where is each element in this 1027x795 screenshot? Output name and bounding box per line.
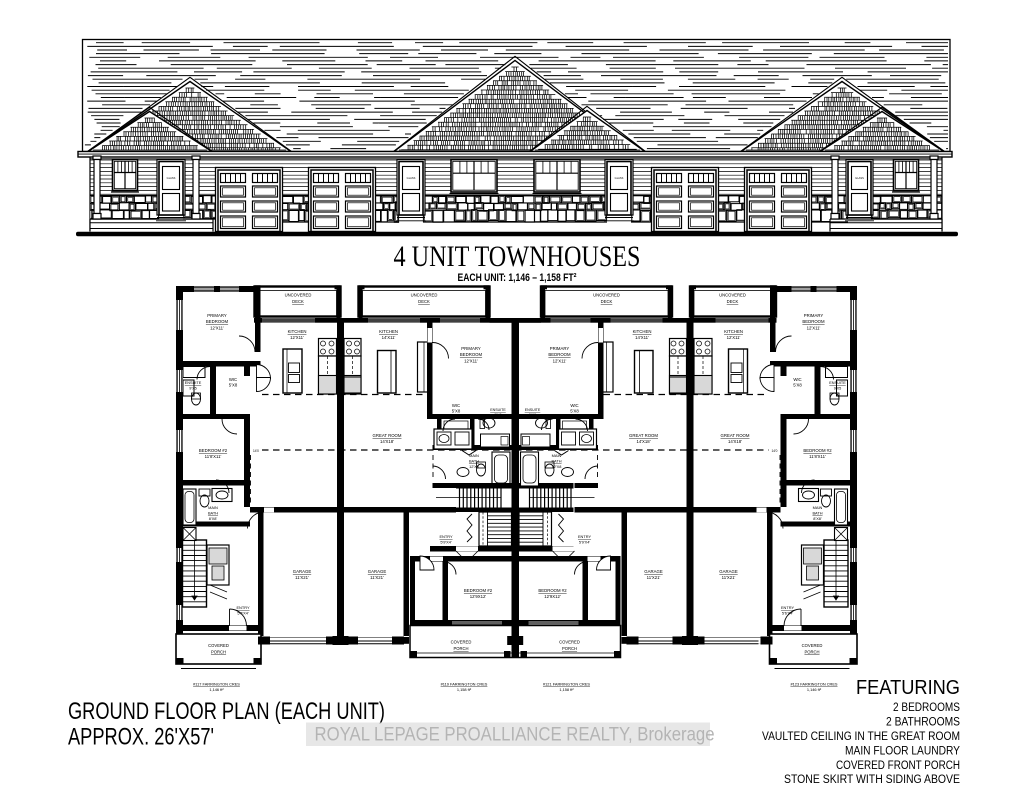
svg-text:WIC: WIC bbox=[793, 377, 801, 382]
svg-text:GLASS: GLASS bbox=[615, 176, 624, 180]
svg-text:9'X5: 9'X5 bbox=[834, 387, 841, 391]
svg-text:11'X21': 11'X21' bbox=[722, 575, 736, 580]
svg-text:#117 FARRINGTON CRES: #117 FARRINGTON CRES bbox=[193, 682, 240, 687]
svg-text:COVERED: COVERED bbox=[559, 640, 580, 645]
svg-text:ENTRY: ENTRY bbox=[439, 534, 453, 539]
svg-text:5'6'X4': 5'6'X4' bbox=[237, 611, 249, 616]
svg-text:VAULTED CEILING IN THE GREAT R: VAULTED CEILING IN THE GREAT ROOM bbox=[762, 729, 960, 743]
svg-text:ENSUITE: ENSUITE bbox=[490, 408, 506, 412]
svg-text:BEDROOM: BEDROOM bbox=[460, 352, 483, 357]
svg-text:5'X8: 5'X8 bbox=[229, 383, 238, 388]
svg-text:BEDROOM #2: BEDROOM #2 bbox=[464, 588, 493, 593]
svg-text:DECK: DECK bbox=[418, 299, 430, 304]
svg-text:1,158 ft²: 1,158 ft² bbox=[559, 687, 574, 692]
svg-text:PRIMARY: PRIMARY bbox=[461, 346, 481, 351]
svg-text:MAIN: MAIN bbox=[813, 505, 823, 510]
svg-text:BEDROOM #2: BEDROOM #2 bbox=[538, 588, 567, 593]
svg-text:WIC: WIC bbox=[452, 403, 460, 408]
svg-text:14'X18': 14'X18' bbox=[380, 439, 394, 444]
svg-text:GREAT ROOM: GREAT ROOM bbox=[629, 433, 658, 438]
svg-text:KITCHEN: KITCHEN bbox=[379, 329, 398, 334]
svg-text:BATH: BATH bbox=[551, 458, 561, 463]
svg-text:GROUND FLOOR PLAN (EACH UNIT): GROUND FLOOR PLAN (EACH UNIT) bbox=[68, 698, 385, 725]
svg-text:11'8'X11': 11'8'X11' bbox=[809, 454, 826, 459]
svg-text:11'X21': 11'X21' bbox=[370, 575, 384, 580]
svg-text:2 BATHROOMS: 2 BATHROOMS bbox=[886, 715, 960, 729]
svg-text:12'X8: 12'X8 bbox=[469, 464, 479, 469]
svg-text:COVERED: COVERED bbox=[802, 643, 823, 648]
svg-text:12'X11': 12'X11' bbox=[727, 335, 741, 340]
svg-text:BEDROOM: BEDROOM bbox=[206, 319, 229, 324]
svg-text:12'X11': 12'X11' bbox=[807, 325, 821, 330]
svg-text:GARAGE: GARAGE bbox=[368, 569, 387, 574]
svg-text:PORCH: PORCH bbox=[562, 646, 577, 651]
svg-text:ENTRY: ENTRY bbox=[578, 534, 592, 539]
svg-text:ENTRY: ENTRY bbox=[236, 605, 250, 610]
svg-text:2 BEDROOMS: 2 BEDROOMS bbox=[893, 700, 960, 714]
svg-text:UNCOVERED: UNCOVERED bbox=[411, 293, 438, 298]
svg-text:MAIN: MAIN bbox=[469, 453, 479, 458]
svg-text:BEDROOM #2: BEDROOM #2 bbox=[199, 448, 228, 453]
svg-text:GLASS: GLASS bbox=[855, 176, 864, 180]
svg-text:GARAGE: GARAGE bbox=[644, 569, 663, 574]
svg-text:DECK: DECK bbox=[601, 299, 613, 304]
svg-text:14'0: 14'0 bbox=[772, 449, 778, 453]
svg-text:KITCHEN: KITCHEN bbox=[724, 329, 743, 334]
svg-text:GLASS: GLASS bbox=[167, 176, 176, 180]
svg-text:EACH UNIT: 1,146 – 1,158 FT²: EACH UNIT: 1,146 – 1,158 FT² bbox=[458, 272, 577, 284]
svg-text:12'X11': 12'X11' bbox=[464, 358, 478, 363]
svg-text:PORCH: PORCH bbox=[804, 650, 819, 655]
svg-text:14'0: 14'0 bbox=[253, 449, 259, 453]
svg-text:COVERED: COVERED bbox=[208, 643, 229, 648]
svg-text:COVERED FRONT PORCH: COVERED FRONT PORCH bbox=[836, 758, 960, 772]
svg-text:STONE SKIRT WITH SIDING ABOVE: STONE SKIRT WITH SIDING ABOVE bbox=[784, 772, 960, 786]
svg-text:GREAT ROOM: GREAT ROOM bbox=[373, 433, 402, 438]
svg-text:11'8'X11': 11'8'X11' bbox=[205, 454, 222, 459]
svg-text:5'X8: 5'X8 bbox=[494, 413, 501, 417]
svg-text:12'X8: 12'X8 bbox=[552, 464, 562, 469]
svg-text:ROYAL LEPAGE PROALLIANCE REALT: ROYAL LEPAGE PROALLIANCE REALTY, Brokera… bbox=[315, 724, 715, 746]
svg-text:ENSUITE: ENSUITE bbox=[185, 381, 202, 385]
svg-text:12'X11': 12'X11' bbox=[210, 325, 224, 330]
svg-text:BEDROOM #2: BEDROOM #2 bbox=[803, 448, 832, 453]
svg-text:4 UNIT TOWNHOUSES: 4 UNIT TOWNHOUSES bbox=[394, 241, 641, 273]
svg-text:11'X21': 11'X21' bbox=[647, 575, 661, 580]
svg-text:PRIMARY: PRIMARY bbox=[550, 346, 570, 351]
svg-text:8'X8': 8'X8' bbox=[813, 516, 822, 521]
svg-text:PORCH: PORCH bbox=[453, 646, 468, 651]
svg-text:5'X8: 5'X8 bbox=[452, 409, 461, 414]
svg-text:5'6'X4': 5'6'X4' bbox=[782, 611, 794, 616]
svg-text:5'X8: 5'X8 bbox=[793, 383, 802, 388]
svg-text:12'X11': 12'X11' bbox=[290, 335, 304, 340]
svg-text:11'X21': 11'X21' bbox=[295, 575, 309, 580]
svg-text:ENSUITE: ENSUITE bbox=[525, 408, 541, 412]
svg-text:14'X18': 14'X18' bbox=[636, 439, 650, 444]
svg-text:UNCOVERED: UNCOVERED bbox=[285, 293, 312, 298]
svg-text:DECK: DECK bbox=[292, 299, 304, 304]
svg-text:BEDROOM: BEDROOM bbox=[802, 319, 825, 324]
svg-text:WIC: WIC bbox=[229, 377, 237, 382]
svg-text:9'X5: 9'X5 bbox=[189, 387, 196, 391]
svg-text:5'9'X4': 5'9'X4' bbox=[440, 539, 452, 544]
svg-text:12'9X12': 12'9X12' bbox=[544, 594, 561, 599]
svg-text:BATH: BATH bbox=[469, 458, 479, 463]
svg-text:GREAT ROOM: GREAT ROOM bbox=[721, 433, 750, 438]
svg-text:5'9'X4': 5'9'X4' bbox=[579, 539, 591, 544]
svg-text:#119 FARRINGTON CRES: #119 FARRINGTON CRES bbox=[441, 682, 488, 687]
svg-text:UNCOVERED: UNCOVERED bbox=[593, 293, 620, 298]
svg-text:GARAGE: GARAGE bbox=[719, 569, 738, 574]
svg-text:KITCHEN: KITCHEN bbox=[288, 329, 307, 334]
svg-text:ENTRY: ENTRY bbox=[781, 605, 795, 610]
svg-text:COVERED: COVERED bbox=[451, 640, 472, 645]
svg-text:PORCH: PORCH bbox=[211, 650, 226, 655]
svg-text:MAIN: MAIN bbox=[208, 505, 218, 510]
svg-text:KITCHEN: KITCHEN bbox=[633, 329, 652, 334]
svg-text:ENSUITE: ENSUITE bbox=[829, 381, 846, 385]
svg-text:BEDROOM: BEDROOM bbox=[548, 352, 571, 357]
svg-text:8'X8': 8'X8' bbox=[209, 516, 218, 521]
svg-text:MAIN: MAIN bbox=[552, 453, 562, 458]
svg-text:14'X11': 14'X11' bbox=[635, 335, 649, 340]
svg-text:1,146 ft²: 1,146 ft² bbox=[807, 687, 822, 692]
svg-text:5'X8: 5'X8 bbox=[570, 409, 579, 414]
svg-text:GLASS: GLASS bbox=[407, 176, 416, 180]
svg-text:WIC: WIC bbox=[570, 403, 578, 408]
svg-text:DECK: DECK bbox=[727, 299, 739, 304]
svg-text:PRIMARY: PRIMARY bbox=[207, 313, 227, 318]
svg-text:#121 FARRINGTON CRES: #121 FARRINGTON CRES bbox=[543, 682, 590, 687]
svg-text:12'9X12': 12'9X12' bbox=[470, 594, 487, 599]
svg-text:1,146 ft²: 1,146 ft² bbox=[209, 687, 224, 692]
svg-text:1,158 ft²: 1,158 ft² bbox=[457, 687, 472, 692]
svg-text:#123 FARRINGTON CRES: #123 FARRINGTON CRES bbox=[790, 682, 837, 687]
svg-text:FEATURING: FEATURING bbox=[856, 676, 960, 699]
svg-text:BATH: BATH bbox=[208, 511, 218, 516]
svg-text:14'X11': 14'X11' bbox=[382, 335, 396, 340]
svg-text:APPROX. 26'X57': APPROX. 26'X57' bbox=[68, 724, 214, 751]
svg-text:UNCOVERED: UNCOVERED bbox=[719, 293, 746, 298]
svg-text:MAIN FLOOR LAUNDRY: MAIN FLOOR LAUNDRY bbox=[845, 743, 960, 757]
svg-text:14'X18': 14'X18' bbox=[728, 439, 742, 444]
svg-text:12'X11': 12'X11' bbox=[553, 358, 567, 363]
svg-text:PRIMARY: PRIMARY bbox=[804, 313, 824, 318]
svg-text:GARAGE: GARAGE bbox=[293, 569, 312, 574]
svg-text:5'X8: 5'X8 bbox=[529, 413, 536, 417]
svg-text:BATH: BATH bbox=[812, 511, 822, 516]
